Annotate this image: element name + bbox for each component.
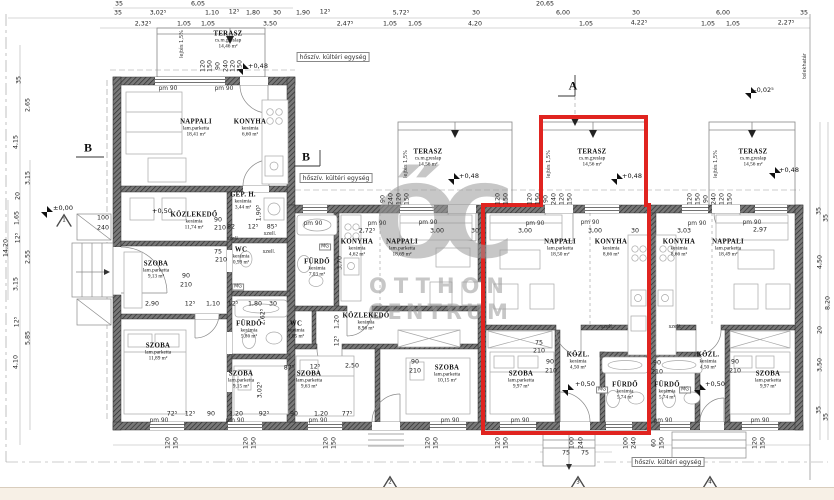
floorplan-page: ŐC OTTHON CENTRUM TERASZcs.m.greslap14,4… xyxy=(0,0,834,500)
floorplan-drawing xyxy=(0,0,834,500)
footer-strip xyxy=(0,487,834,500)
furniture-layer xyxy=(124,92,790,416)
terraces xyxy=(157,28,795,207)
